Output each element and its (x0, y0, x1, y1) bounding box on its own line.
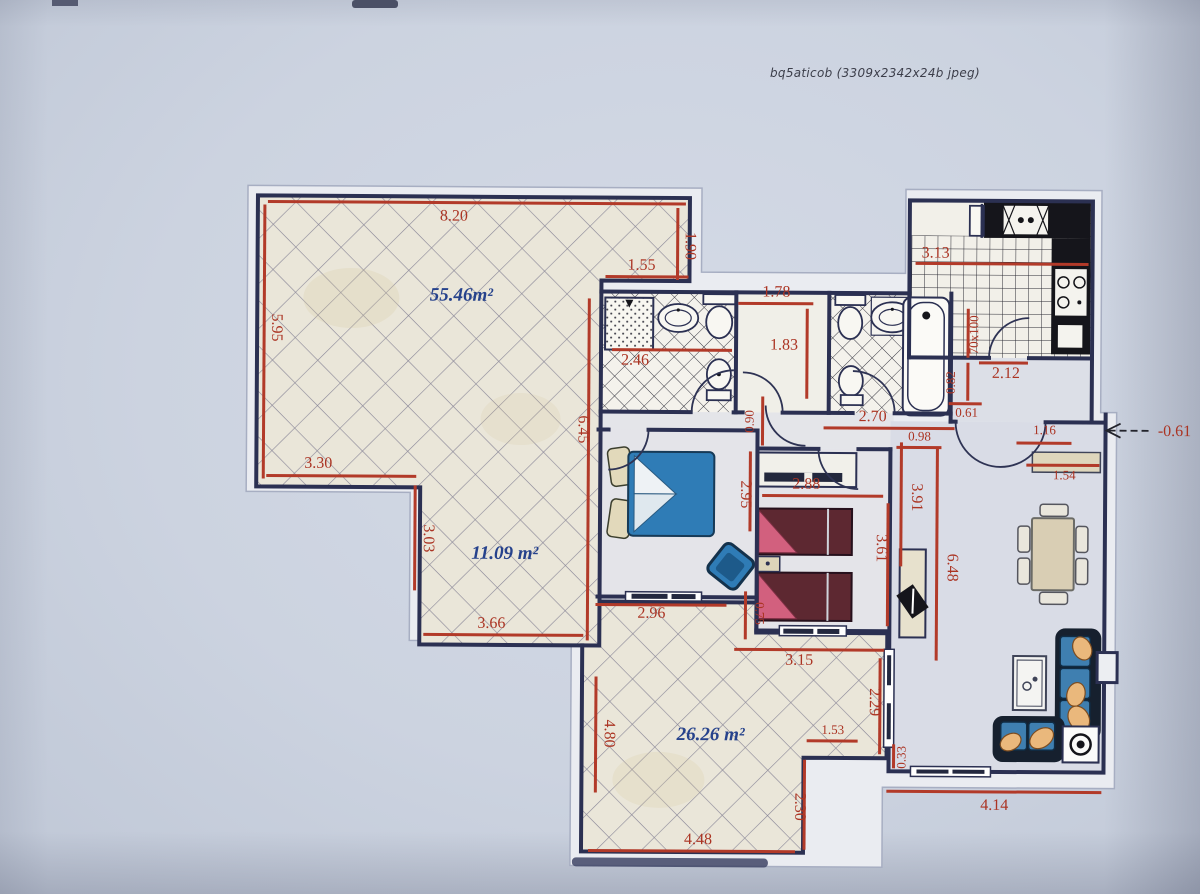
window-glass (916, 769, 948, 773)
bathtub-drain (922, 311, 930, 319)
dim-line (887, 503, 888, 626)
kitchen-appliance (1057, 324, 1083, 348)
dim-line (612, 350, 732, 351)
dim-terrace-mid-left: 3.03 (420, 524, 437, 552)
dim-line (605, 277, 688, 278)
wall-pillar (1097, 653, 1117, 683)
dim-terr-b-top: 3.15 (785, 652, 813, 669)
dim-dressing-top: 1.78 (762, 283, 790, 300)
stove-icon (1054, 268, 1087, 316)
dim-dressing-side: 1.83 (770, 337, 798, 354)
dining-chair (1039, 592, 1067, 604)
dim-terrace-mid-right: 6.45 (574, 415, 591, 443)
bidet-base (707, 390, 731, 400)
toilet-tank (703, 294, 735, 304)
dim-line (415, 485, 416, 590)
sink-tap (891, 308, 894, 311)
sink-basin-dot (1028, 217, 1034, 223)
dim-hall-width: 2.70 (859, 408, 887, 425)
scan-shadow (572, 857, 768, 867)
dining-chair (1040, 504, 1068, 516)
dim-line (595, 676, 596, 792)
window-glass (632, 594, 668, 599)
window-glass (952, 770, 984, 774)
dim-bed2-depth: 3.61 (873, 534, 890, 562)
area-top-terrace: 55.46m² (430, 284, 495, 305)
dim-terrace-mid-bottom: 3.66 (477, 615, 505, 632)
dim-bath2-exit: 0.61 (955, 405, 978, 420)
dim-bed1-offset: 0.75 (752, 602, 767, 625)
dim-terr-b-bottom: 4.48 (684, 831, 712, 848)
floorplan-drawing: 8.20 1.90 1.55 5.95 3.30 6.45 3.03 3.66 … (0, 0, 1200, 894)
dim-bed1-depth: 2.95 (737, 480, 754, 508)
dim-terrace-left-step: 3.30 (304, 455, 332, 472)
dim-living-corner: 0.33 (893, 746, 908, 769)
dim-terrace-top: 8.20 (440, 208, 468, 225)
dim-line (587, 298, 589, 640)
area-bottom-terrace: 26.26 m² (676, 724, 746, 745)
kitchen-sink-unit (1003, 205, 1049, 235)
dim-living-bottom: 4.14 (980, 797, 1008, 814)
dim-living-wall: 6.48 (944, 554, 961, 582)
dim-entry-level: -0.61 (1158, 423, 1191, 440)
scanned-floorplan-photo: { "caption": "bq5aticob (3309x2342x24b j… (0, 0, 1200, 894)
toilet-icon (706, 306, 732, 338)
dim-entry-width: 1.16 (1033, 422, 1056, 437)
dim-line (886, 791, 1101, 792)
dim-line (916, 263, 1089, 264)
dim-kitchen-side: 0.82 (943, 371, 958, 394)
bidet-base (841, 395, 863, 405)
dim-terrace-step: 1.55 (628, 257, 656, 274)
dim-line (588, 850, 795, 851)
dim-terrace-left: 5.95 (268, 313, 285, 341)
scan-artifact (352, 0, 398, 8)
dim-line (423, 634, 583, 635)
scan-artifact (52, 0, 78, 6)
dining-table (1032, 518, 1074, 590)
dim-bed2-width: 2.88 (792, 476, 820, 493)
dim-kitchen-width: 3.13 (922, 244, 950, 261)
dim-line (266, 475, 416, 476)
paper-stain (480, 393, 560, 445)
dim-terr-b-right-up: 2.29 (866, 688, 883, 716)
dim-kitchen-door: 2.12 (992, 365, 1020, 382)
dining-chair (1018, 558, 1030, 584)
bidet-icon (839, 366, 863, 396)
burner-knob (1077, 300, 1081, 304)
dim-living-step: 1.53 (821, 722, 844, 737)
area-mid-terrace: 11.09 m² (471, 543, 539, 564)
paper-stain (612, 752, 704, 809)
dim-terrace-right: 1.90 (682, 232, 699, 260)
window-glass (783, 629, 813, 634)
dim-line (901, 442, 902, 566)
toilet-tank (835, 295, 865, 305)
dining-chair (1076, 558, 1088, 584)
plan-group: 8.20 1.90 1.55 5.95 3.30 6.45 3.03 3.66 … (244, 185, 1193, 870)
dim-terr-b-right: 2.30 (791, 793, 808, 821)
window-glass (672, 594, 696, 599)
dim-line (762, 496, 883, 497)
window-glass (887, 703, 891, 739)
paper-stain (303, 268, 399, 329)
dim-kitchen-window: 70x100 (966, 315, 981, 354)
bath-row-top-wall (601, 292, 909, 294)
lamp-icon-center (1077, 740, 1085, 748)
window-glass (887, 655, 891, 685)
dim-terr-b-left: 4.80 (601, 720, 618, 748)
dim-living-top-left: 0.98 (908, 428, 931, 443)
dim-hall-door: 0.90 (742, 410, 757, 433)
sink-icon (658, 304, 698, 332)
dim-line (734, 649, 884, 650)
nightstand-knob (766, 562, 770, 566)
dining-chair (1018, 526, 1030, 552)
dim-line (807, 309, 808, 399)
window-glass (817, 629, 839, 634)
dim-line (936, 449, 937, 661)
table-decor (1033, 677, 1038, 682)
dim-line (824, 428, 955, 429)
toilet-icon (838, 307, 862, 339)
dining-chair (1076, 526, 1088, 552)
dim-living-wall-upper: 3.91 (908, 483, 925, 511)
sink-tap (677, 308, 680, 311)
sink-basin-dot (1018, 217, 1024, 223)
dim-line (263, 204, 265, 478)
dim-bed1-width: 2.96 (637, 605, 665, 622)
dim-entry-bench: 1.54 (1053, 467, 1076, 482)
dim-bath1-width: 2.46 (621, 352, 649, 369)
